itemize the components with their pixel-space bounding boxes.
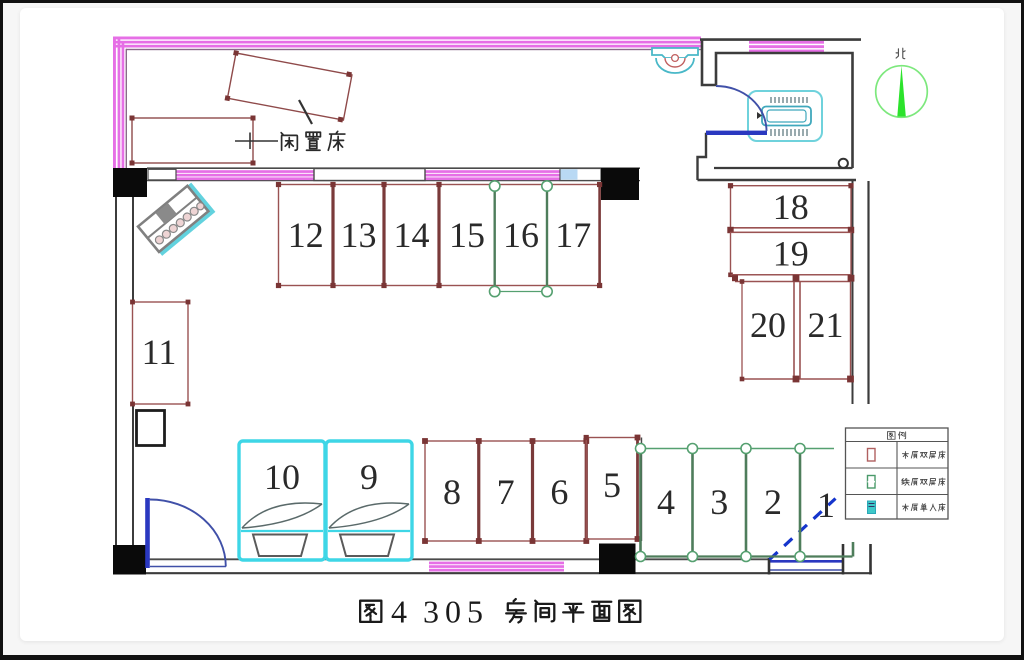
svg-text:2: 2 (764, 482, 782, 522)
svg-text:11: 11 (142, 332, 177, 372)
svg-text:17: 17 (555, 215, 591, 255)
svg-text:7: 7 (497, 472, 515, 512)
svg-text:10: 10 (264, 457, 300, 497)
svg-text:13: 13 (341, 215, 377, 255)
svg-text:4: 4 (391, 594, 407, 630)
svg-text:4: 4 (657, 482, 675, 522)
svg-text:18: 18 (773, 187, 809, 227)
svg-text:1: 1 (817, 485, 835, 525)
svg-text:19: 19 (773, 234, 809, 274)
svg-text:305: 305 (423, 594, 489, 630)
svg-text:5: 5 (603, 465, 621, 505)
svg-text:16: 16 (503, 215, 539, 255)
svg-text:15: 15 (449, 215, 485, 255)
svg-text:6: 6 (550, 472, 568, 512)
svg-text:14: 14 (394, 215, 430, 255)
svg-text:20: 20 (750, 305, 786, 345)
svg-text:8: 8 (443, 472, 461, 512)
svg-text:12: 12 (288, 215, 324, 255)
svg-text:9: 9 (360, 457, 378, 497)
svg-text:21: 21 (808, 305, 844, 345)
svg-text:3: 3 (710, 482, 728, 522)
